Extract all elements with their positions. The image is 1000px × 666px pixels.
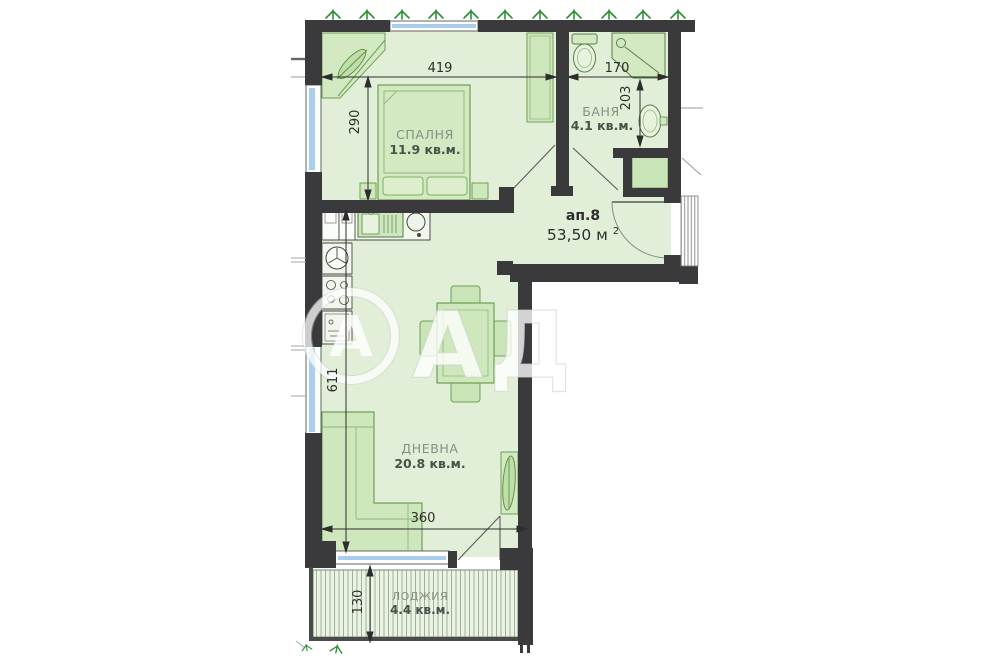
living-name: ДНЕВНА (401, 441, 458, 456)
washing-machine-icon (322, 243, 352, 274)
bedroom-area: 11.9 кв.м. (389, 142, 460, 157)
bedroom-window-west (306, 85, 321, 173)
dim-label-130: 130 (351, 590, 366, 615)
dim-label-203: 203 (619, 86, 634, 111)
watermark: А АД (303, 288, 578, 400)
living-window-south (335, 551, 449, 564)
kitchen-sink-icon (358, 210, 403, 237)
dim-label-170: 170 (605, 61, 630, 76)
shaft-box (632, 156, 668, 188)
apartment-number: ап.8 (566, 208, 600, 224)
apartment-area-value: 53,50 м (547, 226, 608, 244)
dim-label-290: 290 (348, 110, 363, 135)
floor-plan: А АД (0, 0, 1000, 666)
living-area: 20.8 кв.м. (394, 456, 465, 471)
decor-plant (501, 452, 518, 514)
nightstand-right (472, 183, 488, 199)
dim-label-611: 611 (326, 368, 341, 393)
loggia-name: ЛОДЖИЯ (392, 590, 448, 603)
bathroom-area: 4.1 кв.м. (571, 118, 634, 133)
bathroom-name: БАНЯ (582, 104, 620, 119)
stairwell-hatch (681, 196, 698, 266)
toilet-icon (572, 34, 597, 72)
watermark-letters: АД (412, 292, 577, 399)
dim-label-360: 360 (411, 511, 436, 526)
bedroom-window-north (390, 21, 478, 31)
watermark-logo-letter: А (329, 305, 373, 370)
apartment-area-sup: 2 (613, 226, 619, 237)
bedroom-name: СПАЛНЯ (396, 127, 454, 142)
apartment-area: 53,50 м 2 (547, 226, 619, 244)
floor-plan-page: А АД (0, 0, 1000, 666)
loggia-area: 4.4 кв.м. (390, 603, 450, 617)
dim-label-419: 419 (428, 61, 453, 76)
